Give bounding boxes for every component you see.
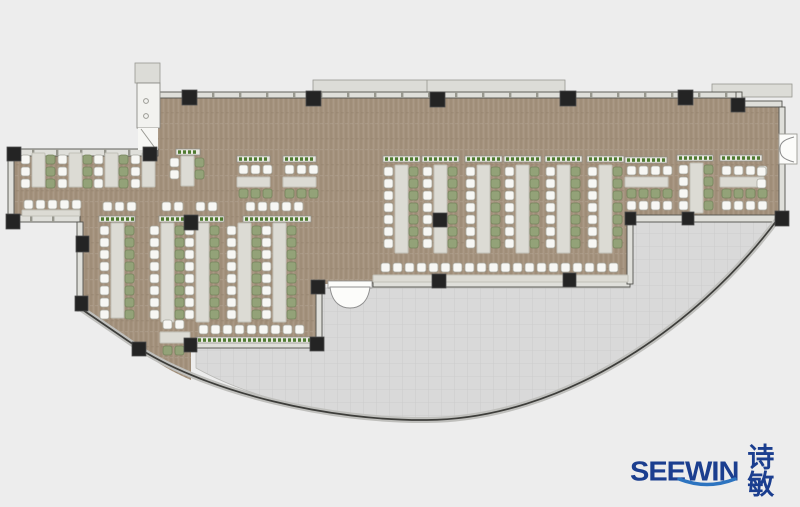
structural-column	[306, 91, 321, 106]
planter-plant	[210, 217, 213, 221]
planter-plant	[536, 157, 539, 161]
chair	[448, 215, 457, 224]
planter-plant	[275, 217, 278, 221]
chair	[235, 325, 244, 334]
chair	[423, 215, 432, 224]
chair	[262, 298, 271, 307]
chair	[94, 167, 103, 176]
planter-plant	[220, 217, 223, 221]
planter-plant	[521, 157, 524, 161]
planter-plant	[709, 156, 712, 160]
chair	[252, 310, 261, 319]
chair	[287, 226, 296, 235]
chair	[262, 226, 271, 235]
chair	[491, 227, 500, 236]
planter-plant	[300, 217, 303, 221]
planter-plant	[278, 338, 281, 342]
chair	[384, 203, 393, 212]
planter-plant	[572, 157, 575, 161]
chair	[60, 200, 69, 209]
chair	[252, 298, 261, 307]
planter-plant	[161, 217, 164, 221]
chair	[196, 202, 205, 211]
window-mullion	[590, 92, 592, 98]
window-mullion	[698, 92, 700, 98]
chair	[453, 263, 462, 272]
chair	[252, 262, 261, 271]
chair	[613, 215, 622, 224]
chair	[505, 227, 514, 236]
chair	[409, 167, 418, 176]
planter-plant	[258, 338, 261, 342]
planter-plant	[298, 338, 301, 342]
chair	[185, 262, 194, 271]
chair	[185, 238, 194, 247]
planter-plant	[260, 217, 263, 221]
planter-plant	[679, 156, 682, 160]
planter-plant	[395, 157, 398, 161]
chair	[757, 167, 766, 176]
chair	[125, 238, 134, 247]
chair	[627, 201, 636, 210]
planter-plant	[285, 157, 288, 161]
chair	[94, 155, 103, 164]
window-mullion	[56, 149, 58, 156]
planter-plant	[722, 156, 725, 160]
structural-column	[678, 90, 693, 105]
chair	[100, 262, 109, 271]
chair	[588, 239, 597, 248]
window-mullion	[509, 92, 511, 98]
chair	[208, 202, 217, 211]
chair	[185, 286, 194, 295]
window-mullion	[482, 92, 484, 98]
structural-column	[75, 296, 88, 311]
chair	[210, 250, 219, 259]
chair	[83, 167, 92, 176]
chair	[505, 179, 514, 188]
chair	[199, 325, 208, 334]
chair	[588, 167, 597, 176]
chair	[239, 189, 248, 198]
planter-plant	[254, 157, 257, 161]
chair	[227, 250, 236, 259]
chair	[525, 263, 534, 272]
chair	[210, 298, 219, 307]
chair	[679, 201, 688, 210]
planter-plant	[454, 157, 457, 161]
planter-plant	[176, 217, 179, 221]
planter-plant	[684, 156, 687, 160]
chair	[252, 274, 261, 283]
planter-plant	[200, 217, 203, 221]
planter-plant	[385, 157, 388, 161]
chair	[125, 226, 134, 235]
planter-plant	[263, 338, 266, 342]
planter-plant	[472, 157, 475, 161]
chair	[651, 189, 660, 198]
planter-plant	[647, 158, 650, 162]
chair	[150, 250, 159, 259]
chair	[72, 200, 81, 209]
planter-plant	[637, 158, 640, 162]
chair	[48, 200, 57, 209]
planter-plant	[557, 157, 560, 161]
chair	[491, 203, 500, 212]
chair	[489, 263, 498, 272]
chair	[651, 201, 660, 210]
chair	[262, 274, 271, 283]
planter-plant	[273, 338, 276, 342]
window-mullion	[671, 92, 673, 98]
chair	[163, 346, 172, 355]
chair	[448, 179, 457, 188]
desk-strip	[434, 165, 447, 253]
planter-plant	[689, 156, 692, 160]
planter-plant	[208, 338, 211, 342]
chair	[546, 167, 555, 176]
chair	[530, 203, 539, 212]
chair	[252, 226, 261, 235]
chair	[262, 310, 271, 319]
planter-divider	[625, 157, 667, 163]
planter-plant	[752, 156, 755, 160]
chair	[448, 227, 457, 236]
desk-strip	[477, 165, 490, 253]
chair	[131, 155, 140, 164]
chair	[58, 155, 67, 164]
desk-strip	[516, 165, 529, 253]
planter-plant	[516, 157, 519, 161]
planter-plant	[259, 157, 262, 161]
planter-plant	[116, 217, 119, 221]
chair	[491, 191, 500, 200]
planter-plant	[121, 217, 124, 221]
chair	[210, 310, 219, 319]
planter-plant	[627, 158, 630, 162]
chair	[263, 189, 272, 198]
desk-strip	[599, 165, 612, 253]
chair	[185, 310, 194, 319]
chair	[501, 263, 510, 272]
desk-strip	[273, 223, 286, 322]
chair	[309, 189, 318, 198]
structural-column	[625, 212, 636, 225]
chair	[491, 239, 500, 248]
chair	[448, 239, 457, 248]
chair	[287, 274, 296, 283]
chair	[58, 179, 67, 188]
planter-plant	[290, 157, 293, 161]
planter-plant	[215, 217, 218, 221]
chair	[530, 191, 539, 200]
chair	[185, 298, 194, 307]
window-mullion	[455, 92, 457, 98]
chair	[609, 263, 618, 272]
planter-plant	[205, 217, 208, 221]
planter-plant	[415, 157, 418, 161]
chair	[24, 200, 33, 209]
chair	[679, 189, 688, 198]
chair	[125, 262, 134, 271]
chair	[125, 298, 134, 307]
chair	[125, 250, 134, 259]
chair	[573, 263, 582, 272]
chair	[491, 167, 500, 176]
wall	[779, 107, 785, 136]
planter-plant	[642, 158, 645, 162]
planter-plant	[599, 157, 602, 161]
chair	[405, 263, 414, 272]
chair	[722, 201, 731, 210]
planter-plant	[280, 217, 283, 221]
window-mullion	[239, 92, 241, 98]
planter-plant	[310, 157, 313, 161]
planter-plant	[609, 157, 612, 161]
chair	[287, 250, 296, 259]
chair	[597, 263, 606, 272]
chair	[287, 298, 296, 307]
chair	[223, 325, 232, 334]
planter-plant	[506, 157, 509, 161]
chair	[704, 177, 713, 186]
chair	[262, 238, 271, 247]
chair	[251, 165, 260, 174]
chair	[505, 191, 514, 200]
chair	[571, 227, 580, 236]
chair	[537, 263, 546, 272]
chair	[252, 250, 261, 259]
planter-plant	[704, 156, 707, 160]
planter-plant	[303, 338, 306, 342]
chair	[588, 227, 597, 236]
chair	[704, 189, 713, 198]
chair	[409, 179, 418, 188]
planter-plant	[203, 338, 206, 342]
planter-plant	[106, 217, 109, 221]
chair	[466, 203, 475, 212]
chair	[679, 165, 688, 174]
structural-column	[6, 214, 20, 229]
chair	[704, 165, 713, 174]
structural-column	[432, 274, 446, 288]
planter-plant	[405, 157, 408, 161]
chair	[170, 158, 179, 167]
chair	[210, 226, 219, 235]
chair	[285, 189, 294, 198]
planter-divider	[720, 155, 762, 161]
chair	[150, 262, 159, 271]
chair	[175, 310, 184, 319]
desk-strip	[557, 165, 570, 253]
chair	[746, 189, 755, 198]
planter-plant	[694, 156, 697, 160]
chair	[746, 166, 755, 175]
planter-plant	[390, 157, 393, 161]
chair	[734, 189, 743, 198]
floorplan-drawing	[0, 0, 800, 507]
structural-column	[560, 91, 576, 106]
chair	[627, 189, 636, 198]
desk-strip	[111, 223, 124, 318]
chair	[530, 227, 539, 236]
planter-plant	[547, 157, 550, 161]
planter-plant	[288, 338, 291, 342]
chair	[679, 177, 688, 186]
planter-plant	[228, 338, 231, 342]
planter-plant	[662, 158, 665, 162]
structural-column	[682, 212, 694, 225]
chair	[46, 179, 55, 188]
chair	[465, 263, 474, 272]
planter-plant	[589, 157, 592, 161]
chair	[448, 203, 457, 212]
chair	[83, 155, 92, 164]
window-mullion	[644, 92, 646, 98]
chair	[423, 227, 432, 236]
planter-plant	[290, 217, 293, 221]
chair	[21, 167, 30, 176]
window-mullion	[293, 92, 295, 98]
chair	[613, 239, 622, 248]
chair	[175, 298, 184, 307]
planter-plant	[198, 338, 201, 342]
chair	[585, 263, 594, 272]
chair	[417, 263, 426, 272]
desk-strip	[32, 153, 45, 187]
chair	[251, 189, 260, 198]
chair	[384, 179, 393, 188]
window-mullion	[374, 92, 376, 98]
chair	[384, 167, 393, 176]
chair	[530, 167, 539, 176]
chair	[423, 191, 432, 200]
chair	[175, 286, 184, 295]
chair	[163, 320, 172, 329]
chair	[588, 179, 597, 188]
desk-strip	[161, 223, 174, 322]
chair	[651, 166, 660, 175]
chair	[588, 215, 597, 224]
chair	[505, 239, 514, 248]
chair	[722, 189, 731, 198]
chair	[613, 167, 622, 176]
chair	[210, 238, 219, 247]
desk-strip	[690, 163, 703, 213]
floorplan-canvas: SEEWIN 诗敏	[0, 0, 800, 507]
structural-column	[182, 90, 197, 105]
window-mullion	[266, 92, 268, 98]
chair	[175, 346, 184, 355]
chair	[258, 202, 267, 211]
planter-plant	[727, 156, 730, 160]
chair	[384, 227, 393, 236]
chair	[491, 215, 500, 224]
chair	[170, 170, 179, 179]
chair	[663, 189, 672, 198]
chair	[100, 226, 109, 235]
chair	[663, 166, 672, 175]
chair	[175, 262, 184, 271]
planter-plant	[482, 157, 485, 161]
chair	[100, 238, 109, 247]
chair	[150, 310, 159, 319]
chair	[384, 215, 393, 224]
chair	[530, 179, 539, 188]
chair	[309, 165, 318, 174]
chair	[287, 286, 296, 295]
structural-column	[7, 147, 21, 161]
desk-strip	[196, 223, 209, 322]
wall	[158, 92, 740, 98]
chair	[285, 165, 294, 174]
structural-column	[775, 211, 789, 226]
chair	[175, 226, 184, 235]
planter-plant	[249, 157, 252, 161]
chair	[429, 263, 438, 272]
chair	[588, 203, 597, 212]
chair	[195, 170, 204, 179]
chair	[58, 167, 67, 176]
desk-strip	[238, 223, 251, 322]
chair	[722, 166, 731, 175]
structural-column	[132, 342, 146, 356]
chair	[174, 202, 183, 211]
chair	[211, 325, 220, 334]
chair	[262, 250, 271, 259]
chair	[704, 201, 713, 210]
planter-plant	[577, 157, 580, 161]
planter-plant	[193, 150, 196, 154]
wall	[627, 215, 781, 222]
chair	[627, 166, 636, 175]
planter-plant	[238, 338, 241, 342]
planter-plant	[632, 158, 635, 162]
planter-plant	[552, 157, 555, 161]
chair	[227, 310, 236, 319]
chair	[150, 238, 159, 247]
planter-plant	[511, 157, 514, 161]
shaft	[137, 83, 160, 128]
structural-column	[310, 337, 324, 351]
chair	[227, 286, 236, 295]
planter-plant	[531, 157, 534, 161]
window-mullion	[536, 92, 538, 98]
chair	[758, 201, 767, 210]
chair	[571, 203, 580, 212]
planter-plant	[243, 338, 246, 342]
chair	[150, 298, 159, 307]
chair	[530, 215, 539, 224]
planter-plant	[223, 338, 226, 342]
window-mullion	[617, 92, 619, 98]
chair	[477, 263, 486, 272]
chair	[46, 155, 55, 164]
chair	[613, 227, 622, 236]
chair	[227, 226, 236, 235]
structural-column	[143, 147, 157, 161]
planter-plant	[233, 338, 236, 342]
chair	[195, 158, 204, 167]
planter-plant	[477, 157, 480, 161]
chair	[247, 325, 256, 334]
chair	[613, 191, 622, 200]
planter-plant	[295, 217, 298, 221]
window-mullion	[401, 92, 403, 98]
planter-plant	[497, 157, 500, 161]
chair	[175, 274, 184, 283]
planter-plant	[410, 157, 413, 161]
